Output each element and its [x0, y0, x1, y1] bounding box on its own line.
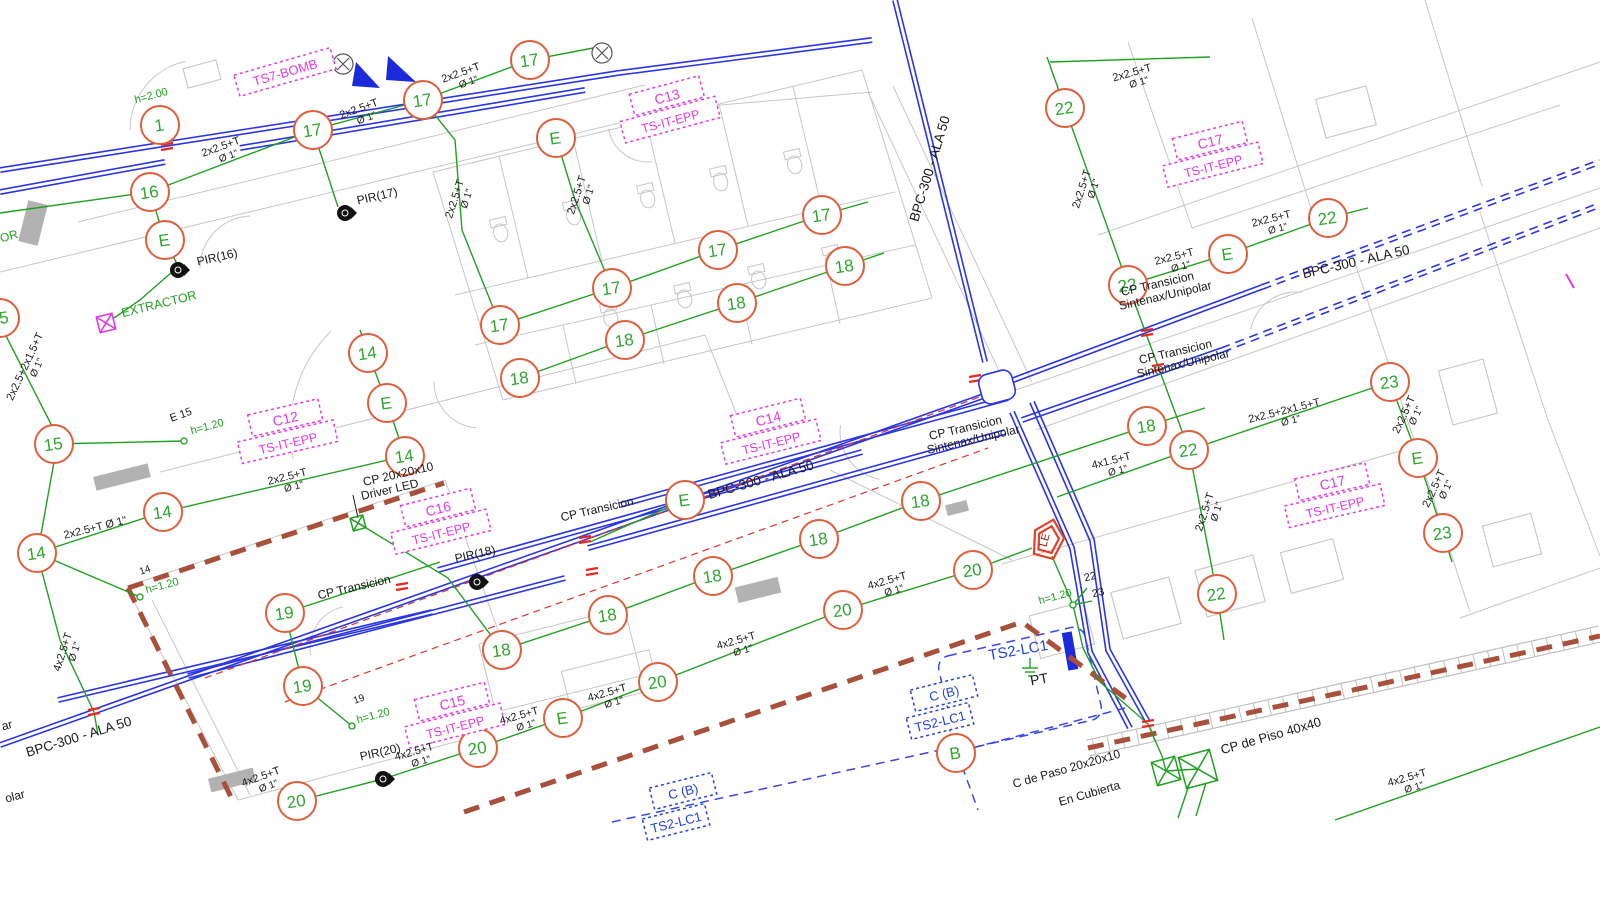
circuit-tag-label: 17 [412, 90, 433, 111]
cable-tray-rung [1370, 677, 1373, 693]
annotation-k: CP de Piso 40x40 [1219, 714, 1323, 757]
control-dashed-line [962, 766, 978, 810]
circuit-tag-label: 18 [614, 330, 635, 351]
wall-line [719, 104, 748, 226]
circuit-tag-label: 18 [597, 605, 618, 626]
extractor-icon [96, 313, 115, 332]
cable-tray-rung [1239, 706, 1242, 722]
wall-line [1425, 0, 1482, 186]
wall-line [1252, 18, 1312, 212]
equipment-outline [1280, 539, 1343, 594]
annotation-k: ar [0, 717, 14, 733]
transition-mark [969, 375, 981, 377]
pir-sensor-icon [375, 771, 391, 787]
annotation-k: PT [1029, 670, 1050, 689]
panel-label-box: TS2-LC1 [642, 804, 709, 841]
annotation-k: BPC-300 - ALA 50 [1301, 242, 1411, 281]
transition-mark [396, 583, 408, 585]
conduit-line [893, 1, 983, 363]
panel-label-box: C17TS-IT-EPP [1279, 461, 1385, 528]
annotation-g: EXTRACTOR [120, 288, 198, 320]
wire-spec-label: 2x2.5+TØ 1" [1111, 62, 1156, 95]
cad-electrical-plan: 116E171717E171717171818181814E1415141415… [0, 0, 1600, 900]
transition-mark [161, 148, 173, 150]
wall-fill-block [945, 500, 969, 516]
boundary-dashed-line [1088, 636, 1600, 748]
circuit-wire [40, 462, 54, 540]
cable-tray-rung [1473, 654, 1476, 670]
pir-sensor-icon [184, 264, 190, 276]
annotation-k: E 15 [168, 406, 193, 425]
circuit-tag-label: 22 [1317, 208, 1338, 229]
junction-box-icon [1178, 749, 1217, 788]
wire-spec-label: 2x2.5+2x1.5+TØ 1" [4, 331, 56, 407]
pir-sensor-icon [469, 574, 485, 590]
annotation-k: 19 [352, 692, 367, 706]
transition-mark [396, 588, 408, 590]
panel-label-box: C13TS-IT-EPP [614, 73, 721, 143]
wire-spec-label: 2x2.5+2x1.5+TØ 1" [1247, 396, 1324, 436]
panel-label-box: C12TS-IT-EPP [232, 397, 338, 464]
equipment-outline [1439, 359, 1498, 425]
circuit-tag-label: 17 [489, 315, 510, 336]
toilet-fixture [674, 283, 695, 310]
circuit-tag-label: 18 [491, 640, 512, 661]
circuit-tag-label: 18 [1136, 416, 1157, 437]
wall-line [646, 121, 675, 243]
conduit-line [618, 38, 872, 71]
circuit-tag-label: 20 [832, 600, 853, 621]
wall-line [1460, 568, 1600, 618]
cable-tray-rail [1086, 626, 1598, 740]
circuit-tag-label: 20 [647, 672, 668, 693]
annotation-k: CP Transicion [316, 572, 392, 602]
door-arc [434, 382, 476, 428]
circuit-wire [423, 100, 500, 325]
circuit-tag-label: 23 [1432, 523, 1453, 544]
equipment-outline [1316, 86, 1377, 138]
circuit-wire [1050, 57, 1210, 62]
circuit-tag-label: 18 [834, 256, 855, 277]
pir-sensor-icon [483, 576, 489, 588]
wall-line [651, 305, 664, 364]
wall-line [893, 86, 1032, 382]
conduit-line [618, 42, 872, 75]
circuit-tag-label: 18 [702, 566, 723, 587]
toilet-fixture [710, 166, 731, 193]
transition-mark [1142, 725, 1154, 727]
annotation-g: h=1.20 [189, 417, 225, 437]
circuit-tag-label: 14 [357, 343, 378, 364]
toilet-fixture [784, 149, 805, 176]
conduit-line [897, 0, 987, 361]
cable-tray-rung [1400, 670, 1403, 686]
pir-sensor-icon [337, 205, 353, 221]
wall-fill-block [93, 463, 151, 490]
wire-spec-label: 4x2.5+TØ 1" [586, 682, 631, 715]
annotation-k: 14 [138, 563, 153, 577]
annotation-r: LE [1038, 532, 1053, 548]
wire-spec-label: 2x2.5+TØ 1" [1250, 208, 1295, 240]
circuit-tag-label: 23 [1379, 372, 1400, 393]
wire-spec-label: 4x2.5+TØ 1" [51, 631, 85, 676]
equipment-outline [183, 60, 221, 88]
transition-mark [88, 713, 100, 715]
circuit-tag-label: 18 [726, 293, 747, 314]
circuit-tag-label: 14 [26, 543, 47, 564]
cable-tray-rung [1136, 729, 1139, 745]
wall-line [1480, 212, 1548, 420]
circuit-tag-label: 20 [962, 560, 983, 581]
magenta-tick [1566, 274, 1574, 288]
wire-node-dot [137, 594, 143, 600]
annotation-g: h=1.20 [1037, 587, 1073, 607]
wall-line [1098, 62, 1600, 235]
cable-tray-rung [1531, 641, 1534, 657]
wall-fill-block [735, 577, 782, 603]
circuit-tag-label: 18 [808, 529, 829, 550]
wire-spec-label: 4x2.5+TØ 1" [1386, 767, 1431, 800]
wall-line [1548, 420, 1600, 556]
annotation-k: CP Transicion [559, 494, 635, 524]
toilet-fixture [637, 183, 658, 210]
wall-line [793, 87, 822, 209]
wire-node-dot [349, 723, 355, 729]
circuit-tag-label: 18 [910, 491, 931, 512]
circuit-tag-label: 22 [1206, 584, 1227, 605]
annotation-g: h=2.00 [133, 86, 169, 106]
panel-label-box: C (B) [649, 773, 716, 810]
cable-tray-rung [1268, 700, 1271, 716]
pir-sensor-icon [351, 207, 357, 219]
equipment-outline [1111, 577, 1181, 639]
circuit-tag-label: 17 [811, 205, 832, 226]
circuit-tag-label: 14 [152, 502, 173, 523]
wire-spec-label: 2x2.5+TØ 1" [565, 174, 599, 219]
transition-mark [88, 708, 100, 710]
pir-sensor-icon [170, 262, 186, 278]
panel-triangle-icon [352, 62, 380, 88]
circuit-tag-label: 15 [43, 434, 64, 455]
conduit-line [57, 610, 431, 698]
cable-tray-rung [1502, 648, 1505, 664]
wire-spec-label: 4x2.5+TØ 1" [393, 741, 438, 774]
wire-spec-label: 2x2.5+TØ 1" [266, 466, 311, 498]
wire-spec-label: 4x2.5+TØ 1" [715, 630, 760, 663]
wire-spec-label: 4x2.5+TØ 1" [866, 570, 911, 603]
circuit-tag-label: 22 [1178, 440, 1199, 461]
panel-label-box: C16TS-IT-EPP [385, 486, 491, 554]
cable-tray-rung [1341, 683, 1344, 699]
panel-label-box: TS7-BOMB [234, 48, 336, 97]
circuit-tag-label: 20 [286, 791, 307, 812]
annotation-k: En Cubierta [1057, 778, 1122, 809]
wire-node-dot [1070, 602, 1076, 608]
callout-leader [353, 495, 358, 518]
wall-line [152, 600, 250, 795]
circuit-wire [1196, 783, 1206, 816]
annotation-k: 2x2.5+T Ø 1" [63, 514, 129, 541]
circuit-tag-label: 17 [519, 50, 540, 71]
wire-node-dot [181, 438, 187, 444]
circuit-tag-label: 22 [1054, 98, 1075, 119]
circuit-wire [1335, 727, 1600, 820]
wall-line [563, 325, 576, 384]
annotation-k: olar [3, 787, 26, 806]
annotation-k: BPC-300 - ALA 50 [24, 714, 133, 760]
wall-line [503, 298, 932, 400]
circuit-wire [1073, 605, 1166, 771]
panel-filled-rect [1062, 631, 1078, 670]
annotation-k: PIR(17) [355, 185, 398, 208]
circuit-tag-label: 19 [292, 676, 313, 697]
circuit-tag-label: 18 [509, 368, 530, 389]
plan-drawing-canvas: 116E171717E171717171818181814E1415141415… [0, 0, 1600, 900]
toilet-fixture [490, 217, 511, 244]
transition-mark [586, 568, 598, 570]
circuit-tag-label: 17 [302, 120, 323, 141]
wall-line [1352, 254, 1420, 458]
wire-spec-label: 4x1.5+TØ 1" [1090, 450, 1135, 482]
circuit-tag-label: 17 [707, 240, 728, 261]
annotation-b: TS2-LC1 [987, 637, 1049, 664]
equipment-outline [1482, 513, 1541, 567]
panel-label-box: C14TS-IT-EPP [715, 396, 821, 464]
control-dashed-line [972, 708, 1125, 748]
annotation-g: h=1.20 [355, 706, 391, 726]
circuit-tag-label: 20 [467, 738, 488, 759]
annotation-g: OR [0, 227, 20, 245]
panel-triangle-icon [386, 56, 416, 82]
transition-mark [586, 573, 598, 575]
circuit-tag-label: 16 [139, 182, 160, 203]
annotation-k: PIR(16) [195, 246, 238, 269]
toilet-fixture [748, 264, 769, 291]
panel-label-box: C17TS-IT-EPP [1157, 119, 1263, 187]
conduit-junction [977, 368, 1018, 406]
circuit-tag-label: 19 [274, 603, 295, 624]
circuit-tag-label: 17 [601, 278, 622, 299]
cable-tray-rung [1209, 713, 1212, 729]
wall-line [1010, 188, 1600, 392]
